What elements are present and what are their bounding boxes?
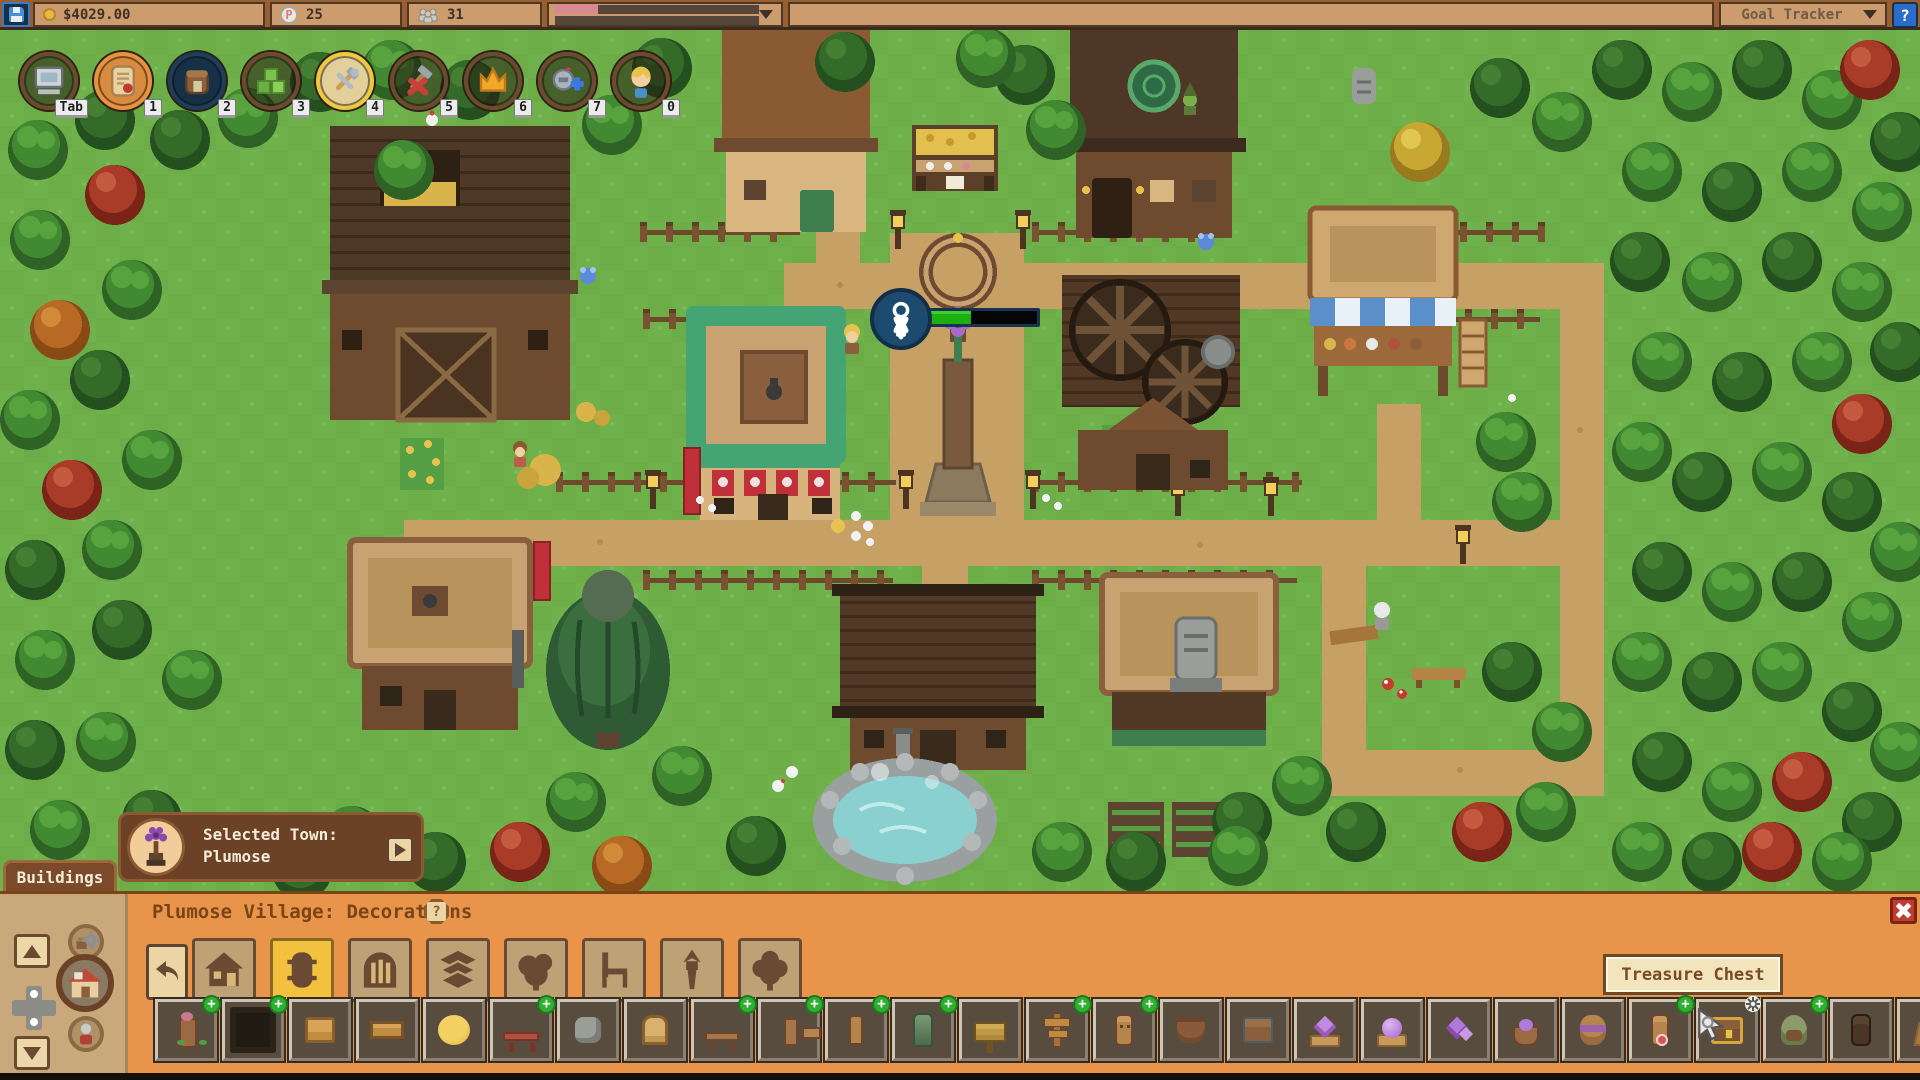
wooden-cart-icon: [1913, 1022, 1920, 1046]
tab-floor-tiles[interactable]: [426, 938, 490, 1002]
hotbar-key-label: 6: [514, 99, 532, 118]
hotbar-key-label: 3: [292, 99, 310, 118]
chevron-down-icon: [1863, 10, 1877, 19]
crop-stall: [912, 125, 998, 191]
arrow-down-icon: [23, 1047, 41, 1060]
dewdrop-count: 25: [306, 7, 323, 23]
hotbar-key-label: 4: [366, 99, 384, 118]
bush-icon: [514, 948, 558, 992]
item-treasure-chest[interactable]: [1696, 999, 1758, 1061]
build-panel: Plumose Village: Decorations ? +++++++++…: [0, 891, 1920, 1080]
item-tooltip: Treasure Chest: [1603, 954, 1783, 995]
item-row: +++++++++++: [155, 999, 1920, 1061]
back-arrow-icon: [152, 957, 182, 987]
plumose-emblem-icon: [870, 288, 932, 350]
craftable-plus-badge: +: [939, 995, 958, 1014]
wooden-post-icon: [849, 1015, 863, 1045]
item-crystal-cluster[interactable]: [1428, 999, 1490, 1061]
hotbar-armor-button[interactable]: 7: [538, 52, 602, 118]
town-flower-icon: [127, 818, 185, 876]
hotbar-key-label: 1: [144, 99, 162, 118]
tab-barrel[interactable]: [270, 938, 334, 1002]
top-bar: $4029.00 P 25 31 Goal Track: [0, 0, 1920, 30]
item-carved-totem[interactable]: +: [1093, 999, 1155, 1061]
bathhouse: [832, 584, 1044, 770]
craftable-plus-badge: +: [1140, 995, 1159, 1014]
armor-icon: [549, 63, 585, 99]
hotbar-player-button[interactable]: 0: [612, 52, 676, 118]
money-display: $4029.00: [33, 2, 265, 27]
wooden-sign-icon: [974, 1022, 1006, 1042]
floor-tiles-icon: [436, 948, 480, 992]
scroll-icon: [105, 63, 141, 99]
category-villagers-icon[interactable]: [68, 1016, 104, 1052]
arrow-up-icon: [23, 945, 41, 958]
amethyst-stand-icon: [1310, 1035, 1340, 1047]
purple-bundle-icon: [1580, 1015, 1606, 1045]
category-tabs: [192, 938, 802, 1002]
tab-tree[interactable]: [738, 938, 802, 1002]
tree-icon: [748, 948, 792, 992]
torch-icon: [670, 948, 714, 992]
chevron-down-icon: [759, 10, 773, 19]
clay-pot-icon: [1177, 1017, 1205, 1043]
dewdrop-icon: P: [280, 6, 298, 24]
goal-tracker-label: Goal Tracker: [1721, 7, 1863, 23]
item-storage-chest[interactable]: [1227, 999, 1289, 1061]
wooden-shelf-icon: [370, 1021, 404, 1039]
chair-icon: [592, 948, 636, 992]
tab-arch-gate[interactable]: [348, 938, 412, 1002]
villager-progress-overlay: [870, 288, 1050, 352]
hotbar-key-label: 5: [440, 99, 458, 118]
floppy-disk-icon: [9, 7, 24, 22]
craftable-plus-badge: +: [738, 995, 757, 1014]
tribal-totem-icon: [1651, 1014, 1669, 1046]
item-wooden-door[interactable]: [624, 999, 686, 1061]
population-count: 31: [447, 7, 464, 23]
lumber-mill: [1062, 275, 1240, 490]
money-value: $4029.00: [63, 7, 130, 23]
craftable-plus-badge: +: [1810, 995, 1829, 1014]
population-display: 31: [407, 2, 542, 27]
selected-town-panel: Selected Town: Plumose: [118, 812, 424, 882]
build-panel-sidebar: [0, 894, 128, 1080]
arrow-signpost-icon: [1053, 1013, 1061, 1047]
mouse-cursor-icon: [1695, 1008, 1729, 1042]
hotbar-key-label: 7: [588, 99, 606, 118]
wooden-door-icon: [642, 1015, 668, 1045]
wooden-bench-icon: [705, 1032, 739, 1041]
craftable-plus-badge: +: [872, 995, 891, 1014]
craftable-plus-badge: +: [202, 995, 221, 1014]
barrel-icon: [280, 948, 324, 992]
gear-badge-icon: [1743, 994, 1763, 1014]
item-vine-pillar[interactable]: +: [892, 999, 954, 1061]
craftable-plus-badge: +: [537, 995, 556, 1014]
carved-totem-icon: [1115, 1014, 1133, 1046]
world-map[interactable]: [0, 30, 1920, 891]
item-mossy-idol[interactable]: +: [1763, 999, 1825, 1061]
demolish-icon: [401, 63, 437, 99]
shadow-ring-icon: [230, 1007, 276, 1053]
mossy-idol-icon: [1781, 1015, 1807, 1045]
player-icon: [623, 63, 659, 99]
crown-icon: [475, 63, 511, 99]
hotbar-scroll-button[interactable]: 1: [94, 52, 158, 118]
item-purple-bundle[interactable]: [1562, 999, 1624, 1061]
item-shadow-ring[interactable]: +: [222, 999, 284, 1061]
item-arrow-signpost[interactable]: +: [1026, 999, 1088, 1061]
scroll-up-button[interactable]: [14, 934, 50, 968]
next-town-button[interactable]: [387, 837, 413, 863]
item-red-bench[interactable]: +: [490, 999, 552, 1061]
tab-torch[interactable]: [660, 938, 724, 1002]
item-dark-totem[interactable]: [1830, 999, 1892, 1061]
exp-bar: [555, 5, 759, 14]
selected-town-name: Plumose: [203, 846, 338, 868]
terrain-icon: [253, 63, 289, 99]
item-wooden-crate[interactable]: [289, 999, 351, 1061]
hotbar-computer-button[interactable]: Tab: [20, 52, 84, 118]
amethyst-orb-icon: [1377, 1034, 1407, 1047]
coin-icon: [43, 8, 56, 21]
house-icon: [202, 948, 246, 992]
hotbar-key-label: 0: [662, 99, 680, 118]
craftable-plus-badge: +: [805, 995, 824, 1014]
item-sign-arm[interactable]: +: [758, 999, 820, 1061]
arch-gate-icon: [358, 948, 402, 992]
scroll-down-button[interactable]: [14, 1036, 50, 1070]
dark-totem-icon: [1851, 1014, 1871, 1046]
build-tools-icon: [327, 63, 363, 99]
goal-tracker-dropdown[interactable]: Goal Tracker: [1719, 2, 1887, 27]
hotbar-backpack-button[interactable]: 2: [168, 52, 232, 118]
hotbar-crown-button[interactable]: 6: [464, 52, 528, 118]
back-button[interactable]: [146, 944, 188, 1000]
panel-help-button[interactable]: ?: [424, 899, 449, 924]
item-hay-bale[interactable]: [423, 999, 485, 1061]
craftable-plus-badge: +: [1676, 995, 1695, 1014]
item-wooden-cart[interactable]: [1897, 999, 1920, 1061]
villagers-icon: [417, 7, 439, 23]
crystal-cluster-icon: [1441, 1012, 1477, 1048]
item-amethyst-stand[interactable]: [1294, 999, 1356, 1061]
hotbar-key-label: Tab: [55, 99, 88, 118]
sign-arm-icon: [784, 1018, 798, 1046]
panel-bottom-strip: [0, 1073, 1920, 1080]
help-button[interactable]: ?: [1892, 2, 1918, 28]
computer-icon: [31, 63, 67, 99]
dewdrop-display: P 25: [270, 2, 402, 27]
save-button[interactable]: [2, 2, 30, 27]
item-clay-pot[interactable]: [1160, 999, 1222, 1061]
barn-building: [322, 111, 610, 427]
craftable-plus-badge: +: [269, 995, 288, 1014]
exp-bar-dropdown[interactable]: [547, 2, 783, 27]
tab-bush[interactable]: [504, 938, 568, 1002]
flower-statue-icon: [168, 1012, 204, 1048]
hotbar: Tab12345670: [20, 52, 676, 118]
secondary-bar: [555, 16, 759, 25]
hotbar-key-label: 2: [218, 99, 236, 118]
red-bench-icon: [503, 1032, 539, 1041]
hotbar-demolish-button[interactable]: 5: [390, 52, 454, 118]
item-amethyst-orb[interactable]: [1361, 999, 1423, 1061]
status-bar-empty: [788, 2, 1714, 27]
arrow-right-icon: [395, 843, 406, 857]
selected-town-label: Selected Town:: [203, 824, 338, 846]
item-wooden-bench[interactable]: +: [691, 999, 753, 1061]
storage-chest-icon: [1243, 1017, 1273, 1043]
villager-progress-bar: [928, 308, 1040, 327]
item-wooden-post[interactable]: +: [825, 999, 887, 1061]
statue-workshop: [1102, 575, 1276, 746]
item-wooden-shelf[interactable]: [356, 999, 418, 1061]
tab-house[interactable]: [192, 938, 256, 1002]
game-screen: $4029.00 P 25 31 Goal Track: [0, 0, 1920, 1080]
item-flower-statue[interactable]: +: [155, 999, 217, 1061]
backpack-icon: [179, 63, 215, 99]
item-tribal-totem[interactable]: +: [1629, 999, 1691, 1061]
guild-hall: [1062, 30, 1246, 238]
vine-pillar-icon: [913, 1013, 933, 1047]
crystal-basket-icon: [1513, 1026, 1539, 1046]
move-dpad-icon[interactable]: [12, 986, 56, 1030]
tab-chair[interactable]: [582, 938, 646, 1002]
hotbar-terrain-button[interactable]: 3: [242, 52, 306, 118]
item-wooden-sign[interactable]: [959, 999, 1021, 1061]
hay-bale-icon: [438, 1015, 470, 1045]
category-buildings-icon[interactable]: [56, 954, 114, 1012]
close-button[interactable]: [1890, 897, 1917, 924]
buildings-tab[interactable]: Buildings: [3, 860, 117, 891]
item-crystal-basket[interactable]: [1495, 999, 1557, 1061]
wooden-crate-icon: [305, 1017, 335, 1043]
item-stone-seat[interactable]: [557, 999, 619, 1061]
hotbar-build-tools-button[interactable]: 4: [316, 52, 380, 118]
craftable-plus-badge: +: [1073, 995, 1092, 1014]
stone-seat-icon: [575, 1017, 601, 1043]
